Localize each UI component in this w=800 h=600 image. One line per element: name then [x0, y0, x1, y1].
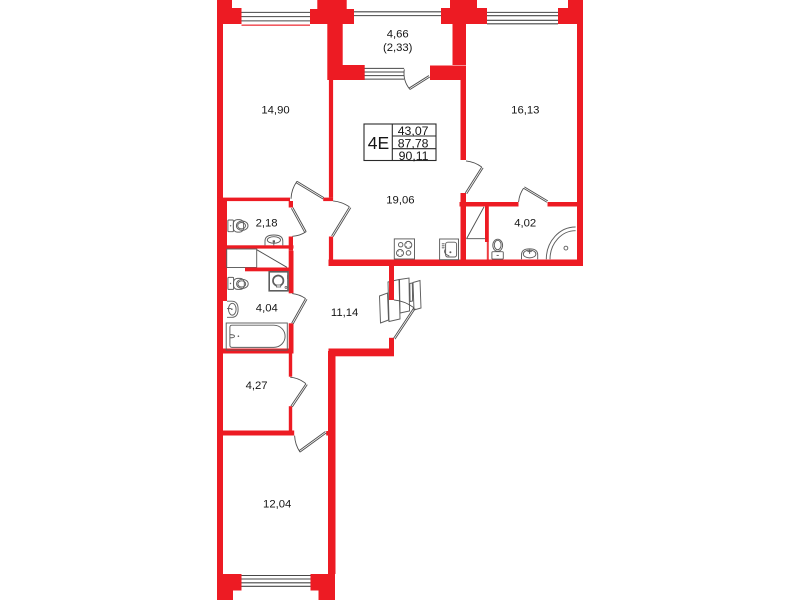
- svg-text:16,13: 16,13: [511, 105, 539, 117]
- svg-text:4,04: 4,04: [256, 303, 278, 315]
- svg-text:(2,33): (2,33): [383, 42, 413, 54]
- svg-text:11,14: 11,14: [331, 307, 358, 319]
- svg-text:4,27: 4,27: [246, 380, 268, 392]
- svg-text:4E: 4E: [368, 133, 389, 153]
- svg-text:4,66: 4,66: [387, 29, 409, 41]
- svg-text:19,06: 19,06: [386, 195, 414, 207]
- svg-text:14,90: 14,90: [261, 105, 289, 117]
- svg-text:12,04: 12,04: [263, 498, 291, 510]
- svg-text:43,07: 43,07: [398, 124, 429, 138]
- svg-text:90,11: 90,11: [399, 149, 429, 163]
- svg-text:4,02: 4,02: [514, 218, 536, 230]
- svg-text:2,18: 2,18: [256, 217, 278, 229]
